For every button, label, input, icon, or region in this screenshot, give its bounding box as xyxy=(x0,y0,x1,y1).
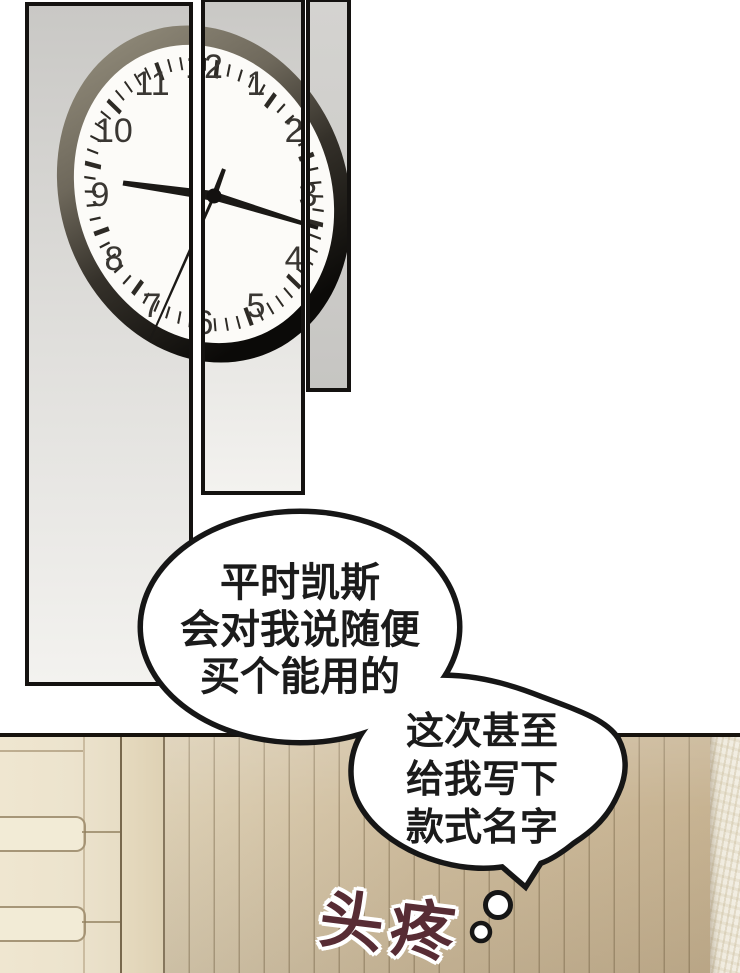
svg-text:5: 5 xyxy=(247,287,266,325)
plaster-column xyxy=(710,737,740,973)
comic-panel-3: 123456789101112 xyxy=(306,0,351,392)
wall-clock: 123456789101112 xyxy=(25,2,193,420)
svg-text:8: 8 xyxy=(104,240,123,278)
drawer-edge-line xyxy=(82,831,120,833)
svg-text:10: 10 xyxy=(95,112,133,150)
speech-bubble-1-text: 平时凯斯 会对我说随便 买个能用的 xyxy=(152,560,448,701)
svg-text:11: 11 xyxy=(134,65,169,103)
bubble1-line1: 平时凯斯 xyxy=(152,560,448,607)
wall-trim-strip xyxy=(120,737,165,973)
bubble2-line1: 这次甚至 xyxy=(362,707,602,755)
svg-text:12: 12 xyxy=(201,48,223,86)
svg-text:9: 9 xyxy=(91,176,110,214)
svg-text:1: 1 xyxy=(247,65,266,103)
svg-text:6: 6 xyxy=(201,304,213,342)
bubble1-line3: 买个能用的 xyxy=(152,654,448,701)
thought-bubble-text: 这次甚至 给我写下 款式名字 xyxy=(362,707,602,851)
bubble1-line2: 会对我说随便 xyxy=(152,607,448,654)
drawer-edge-line xyxy=(82,921,120,923)
sfx-headache-text: 头疼 xyxy=(315,868,467,973)
svg-text:12: 12 xyxy=(185,48,193,86)
wall-clock: 123456789101112 xyxy=(201,0,305,420)
cabinet xyxy=(0,737,120,973)
svg-text:3: 3 xyxy=(306,176,317,214)
cabinet-drawer xyxy=(0,906,86,942)
bubble2-line3: 款式名字 xyxy=(362,803,602,851)
bubble2-line2: 给我写下 xyxy=(362,755,602,803)
comic-page: 123456789101112 123456789101112 xyxy=(0,0,740,973)
comic-panel-2: 123456789101112 xyxy=(201,0,305,495)
cabinet-drawer xyxy=(0,816,86,852)
svg-text:3: 3 xyxy=(299,176,305,214)
svg-text:4: 4 xyxy=(285,240,304,278)
wall-clock: 123456789101112 xyxy=(306,0,351,392)
svg-text:2: 2 xyxy=(285,112,304,150)
cabinet-divider-line xyxy=(83,737,85,973)
cabinet-top-line xyxy=(0,750,83,752)
